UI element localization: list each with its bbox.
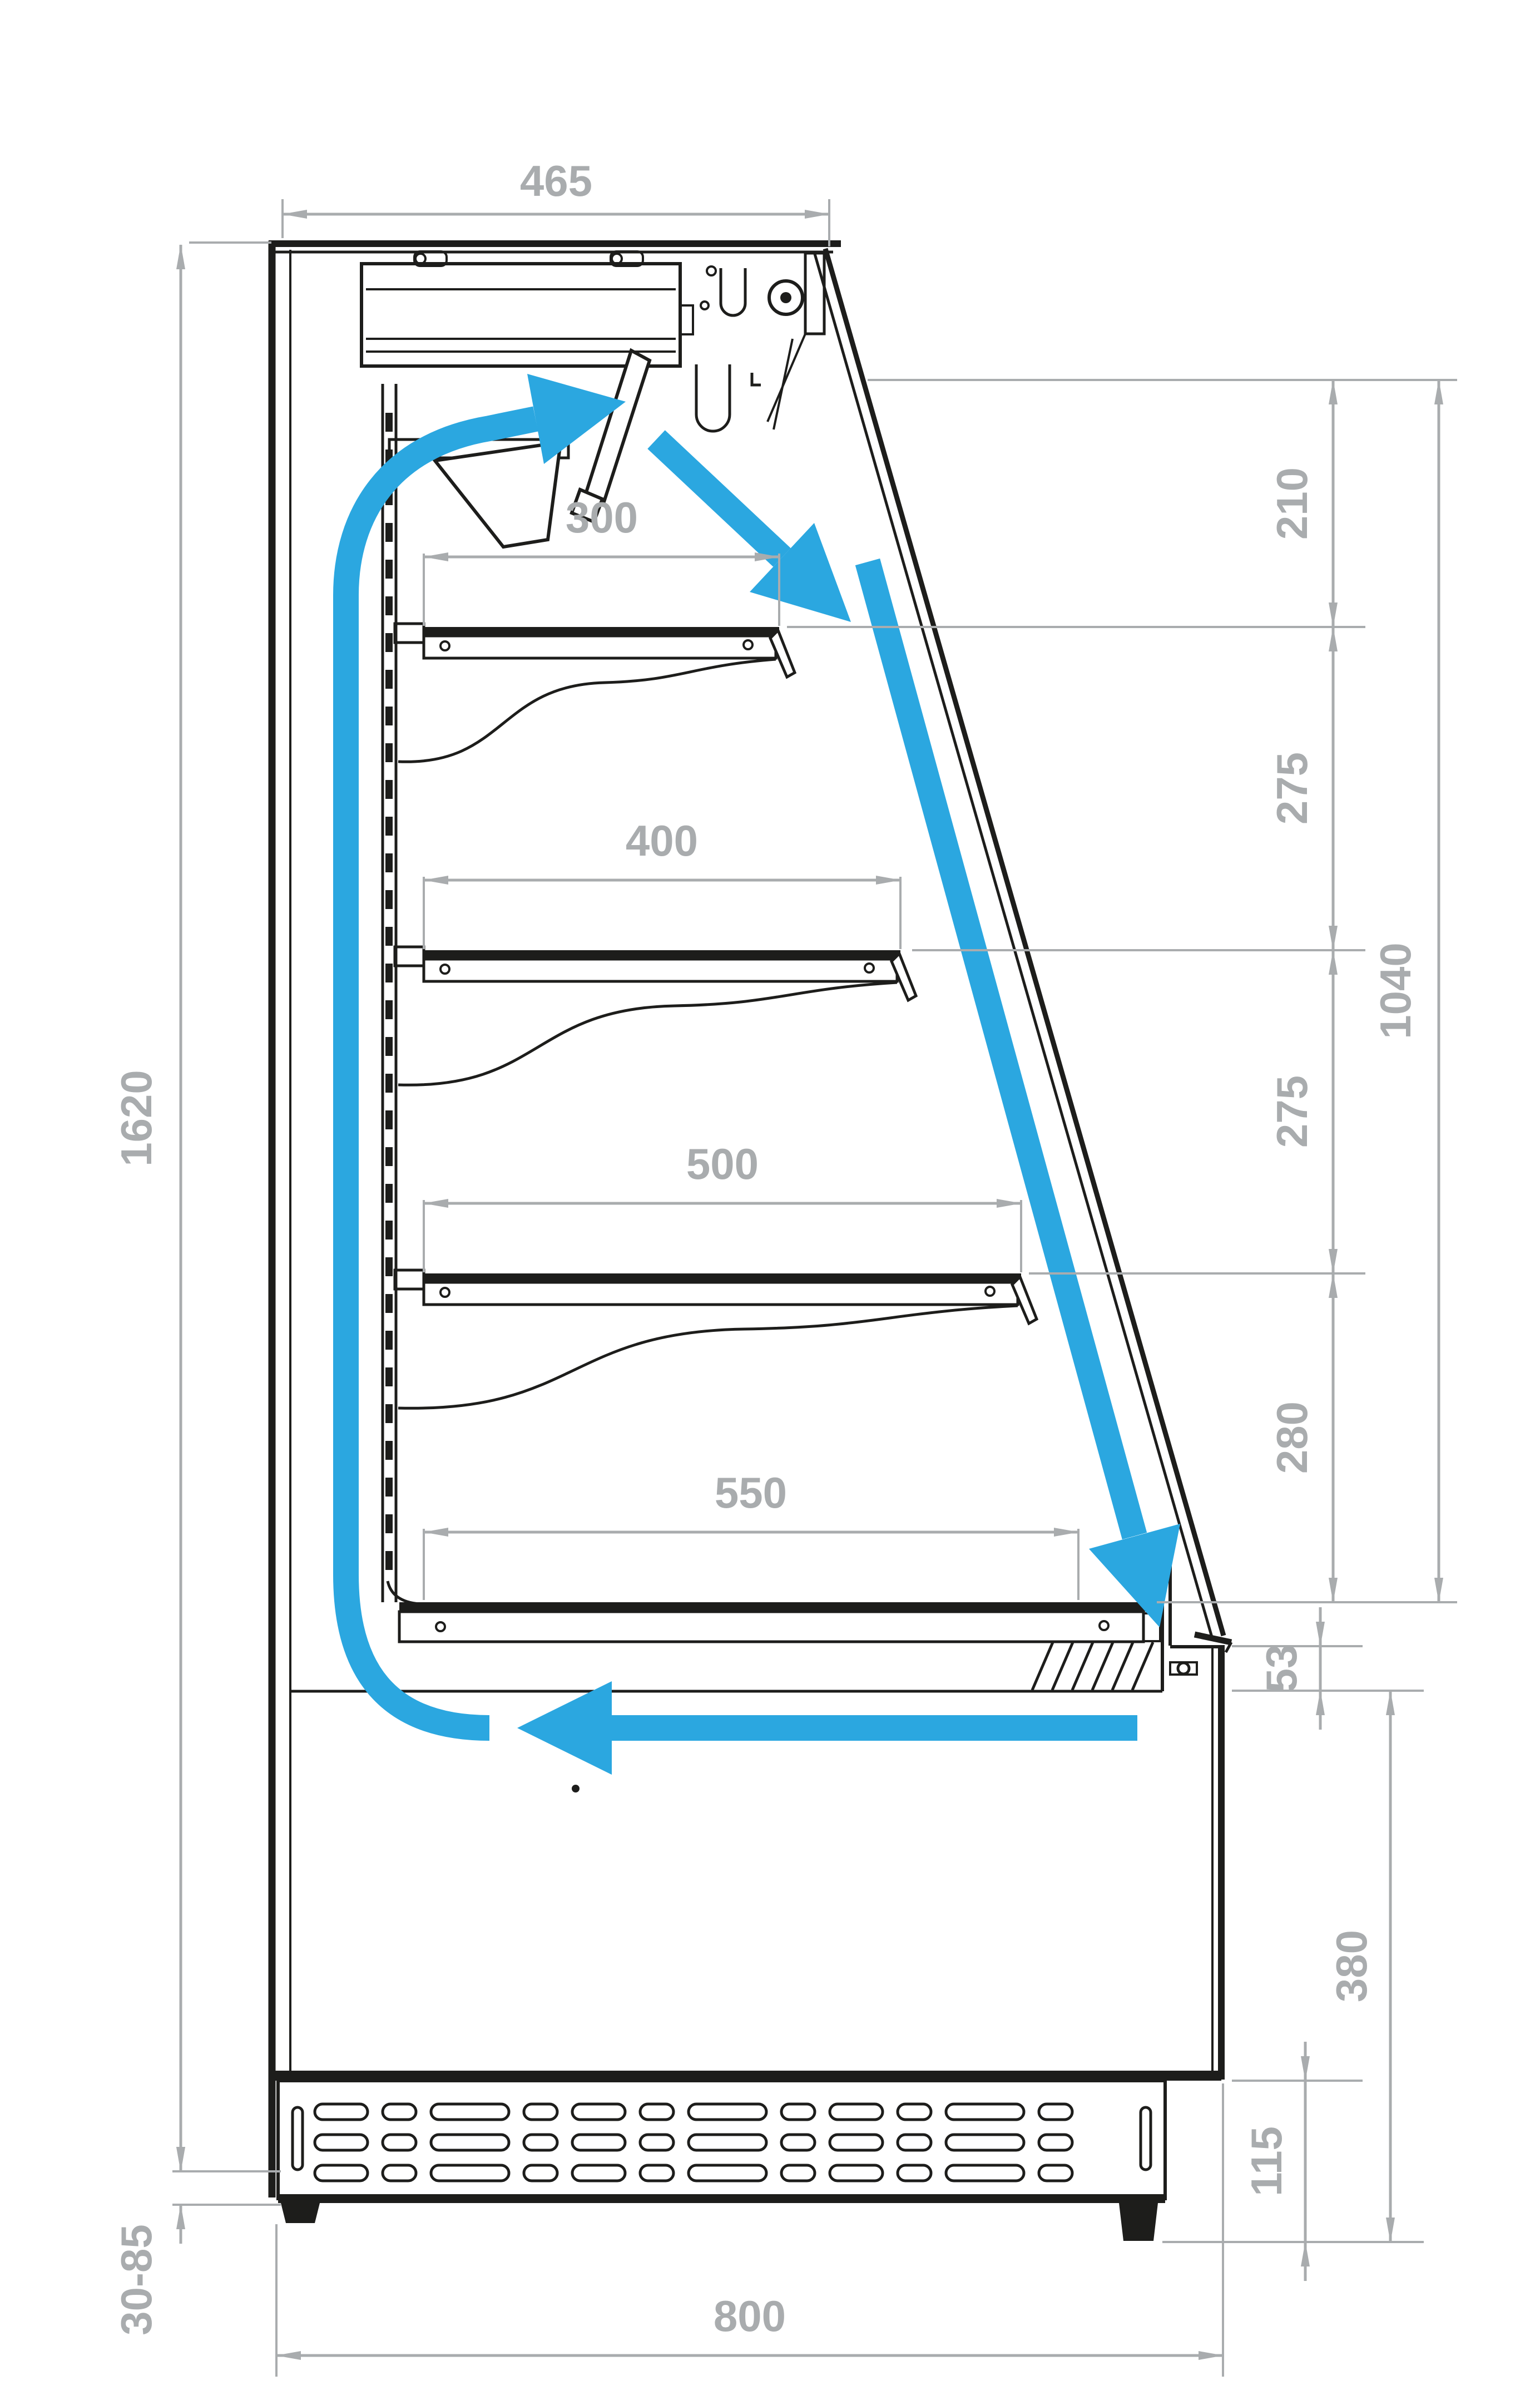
shelf-2-screw-right <box>865 964 874 972</box>
glass-foot <box>1195 1634 1231 1642</box>
vent-slot <box>830 2165 883 2181</box>
vent-slot <box>898 2135 931 2150</box>
shelf-2 <box>395 947 916 1085</box>
deck-top <box>399 1602 1147 1612</box>
vent-slot <box>898 2165 931 2181</box>
duct-slot <box>385 1404 393 1423</box>
vent-slot <box>1039 2165 1072 2181</box>
vent-slot <box>1039 2104 1072 2120</box>
duct-slot <box>385 890 393 909</box>
vent-slot <box>781 2135 815 2150</box>
support-strut-2 <box>767 334 805 422</box>
airflow <box>346 374 1180 1775</box>
duct-slot <box>385 743 393 762</box>
shelf-1-screw-left <box>440 641 449 650</box>
duct-slot <box>385 670 393 689</box>
shelf-2-bracket-wave <box>398 982 897 1085</box>
glass-outer-line <box>825 249 1224 1636</box>
deck-screw-left <box>436 1622 445 1631</box>
fan-motor-axle <box>780 292 791 303</box>
duct-slot <box>385 1257 393 1276</box>
plinth-end-slot-left <box>293 2107 303 2170</box>
duct-slot <box>385 633 393 652</box>
vent-slot <box>898 2104 931 2120</box>
deck-left-cove <box>388 1581 419 1604</box>
shelf-1-front-lip <box>770 630 795 677</box>
vent-slot <box>431 2104 509 2120</box>
duct-slot <box>385 1514 393 1533</box>
label-top-width: 465 <box>520 156 592 205</box>
back-duct-panel <box>383 384 396 1602</box>
duct-slot <box>385 560 393 579</box>
label-right-shelf-gap-2: 275 <box>1267 1075 1316 1148</box>
label-right-gap-bottom: 280 <box>1267 1401 1316 1474</box>
shelf-3-front-lip <box>1012 1277 1037 1324</box>
duct-slot <box>385 707 393 725</box>
shelf-2-screw-left <box>440 965 449 974</box>
duct-panel-slots <box>385 413 393 1570</box>
vent-slot <box>315 2104 368 2120</box>
vent-slot <box>383 2135 416 2150</box>
vent-slot <box>572 2135 625 2150</box>
vent-slot <box>431 2165 509 2181</box>
vent-slot <box>781 2104 815 2120</box>
duct-slot <box>385 1221 393 1239</box>
label-feet-range: 30-85 <box>112 2224 161 2335</box>
glass-inner-line <box>814 252 1212 1639</box>
deck-screw-right <box>1100 1621 1108 1630</box>
display-case-drawing: 465 300 400 500 550 800 210 275 275 280 … <box>0 0 1540 2400</box>
screw-hole-2 <box>701 302 709 309</box>
duct-slot <box>385 853 393 872</box>
bottom-deck <box>388 1581 1160 1690</box>
vent-slot <box>689 2135 766 2150</box>
evaporator-step <box>680 305 693 334</box>
vent-slot <box>315 2135 368 2150</box>
shelf-1 <box>395 624 795 762</box>
grille-hatch-line <box>1112 1642 1133 1690</box>
drain-tube <box>696 364 730 431</box>
air-deflector-scoop <box>435 442 561 547</box>
shelf-3-bracket-wave <box>398 1306 1018 1408</box>
duct-slot <box>385 596 393 615</box>
vent-slot <box>689 2165 766 2181</box>
vent-slot <box>689 2104 766 2120</box>
label-shelf-4-depth: 550 <box>715 1468 787 1517</box>
vent-slot <box>524 2165 557 2181</box>
vent-slot <box>524 2135 557 2150</box>
label-front-edge: 53 <box>1257 1645 1306 1693</box>
duct-slot <box>385 964 393 982</box>
vent-slot <box>830 2104 883 2120</box>
shelf-1-bracket <box>395 624 424 643</box>
label-base-depth: 800 <box>714 2292 786 2340</box>
vent-slot <box>640 2135 674 2150</box>
vent-slot <box>946 2104 1024 2120</box>
duct-slot <box>385 1294 393 1313</box>
grille-hatch-line <box>1052 1642 1073 1690</box>
duct-slot <box>385 927 393 946</box>
label-right-gap-top: 210 <box>1267 467 1316 540</box>
duct-slot <box>385 1441 393 1460</box>
glass-mount-bracket <box>805 253 824 334</box>
duct-slot <box>385 1551 393 1570</box>
label-right-shelf-gap-1: 275 <box>1267 752 1316 824</box>
plinth-bottom-band <box>278 2194 1165 2203</box>
vent-slot <box>830 2135 883 2150</box>
deck-body <box>399 1612 1143 1642</box>
label-plinth-height: 115 <box>1242 2126 1291 2196</box>
duct-slot <box>385 1147 393 1166</box>
vent-slot <box>640 2165 674 2181</box>
duct-slot <box>385 1110 393 1129</box>
small-hook <box>752 373 761 385</box>
discharge-louver <box>586 350 650 503</box>
airflow-return-arrowhead-icon <box>517 1681 612 1775</box>
screw-hole-1 <box>707 266 716 275</box>
shelf-1-screw-right <box>744 640 752 649</box>
label-right-total: 1040 <box>1371 942 1420 1039</box>
duct-slot <box>385 523 393 542</box>
airflow-curtain-line <box>868 562 1135 1536</box>
return-air-grille <box>1032 1642 1153 1690</box>
shelf-3-body <box>424 1282 1018 1305</box>
duct-slot <box>385 1000 393 1019</box>
duct-slot <box>385 1367 393 1386</box>
vent-slot <box>383 2165 416 2181</box>
duct-slot <box>385 780 393 799</box>
shelf-2-front-lip <box>892 954 916 1000</box>
hanger-hook <box>721 268 745 315</box>
shelf-3-screw-left <box>440 1288 449 1297</box>
label-base-front-height: 380 <box>1327 1930 1376 2002</box>
foot-left <box>281 2203 320 2223</box>
vent-slot <box>946 2135 1024 2150</box>
plinth-end-slot-right <box>1141 2107 1151 2170</box>
airflow-discharge-line <box>656 439 782 557</box>
grille-hatch-line <box>1132 1642 1153 1690</box>
label-shelf-1-depth: 300 <box>566 493 638 542</box>
vent-slot <box>640 2104 674 2120</box>
shelf-3 <box>395 1270 1037 1408</box>
duct-slot <box>385 413 393 432</box>
label-shelf-3-depth: 500 <box>686 1139 759 1188</box>
grille-hatch-line <box>1032 1642 1053 1690</box>
shelf-1-body <box>424 636 776 658</box>
duct-slot <box>385 1331 393 1350</box>
base-drain-dot <box>572 1785 580 1792</box>
shelf-2-body <box>424 959 897 981</box>
vent-slot <box>1039 2135 1072 2150</box>
shelf-3-bracket <box>395 1270 424 1289</box>
duct-slot <box>385 1184 393 1203</box>
shelf-2-bracket <box>395 947 424 966</box>
grille-hatch-line <box>1092 1642 1113 1690</box>
shelf-1-bracket-wave <box>398 659 776 762</box>
foot-right <box>1119 2203 1158 2241</box>
vent-slot <box>431 2135 509 2150</box>
vent-slot <box>781 2165 815 2181</box>
duct-slot <box>385 1037 393 1056</box>
vented-plinth <box>278 2081 1165 2241</box>
vent-slot <box>315 2165 368 2181</box>
shelf-3-screw-right <box>986 1287 994 1296</box>
grille-hatch-line <box>1072 1642 1093 1690</box>
vent-slot <box>383 2104 416 2120</box>
vent-slot <box>524 2104 557 2120</box>
label-shelf-2-depth: 400 <box>626 816 698 865</box>
duct-slot <box>385 1074 393 1093</box>
label-overall-height: 1620 <box>112 1070 161 1167</box>
vent-slots <box>315 2104 1072 2181</box>
vent-slot <box>572 2104 625 2120</box>
vent-slot <box>946 2165 1024 2181</box>
back-wall <box>272 241 290 2197</box>
duct-slot <box>385 817 393 836</box>
duct-slot <box>385 1478 393 1497</box>
vent-slot <box>572 2165 625 2181</box>
front-bolt <box>1178 1663 1189 1674</box>
